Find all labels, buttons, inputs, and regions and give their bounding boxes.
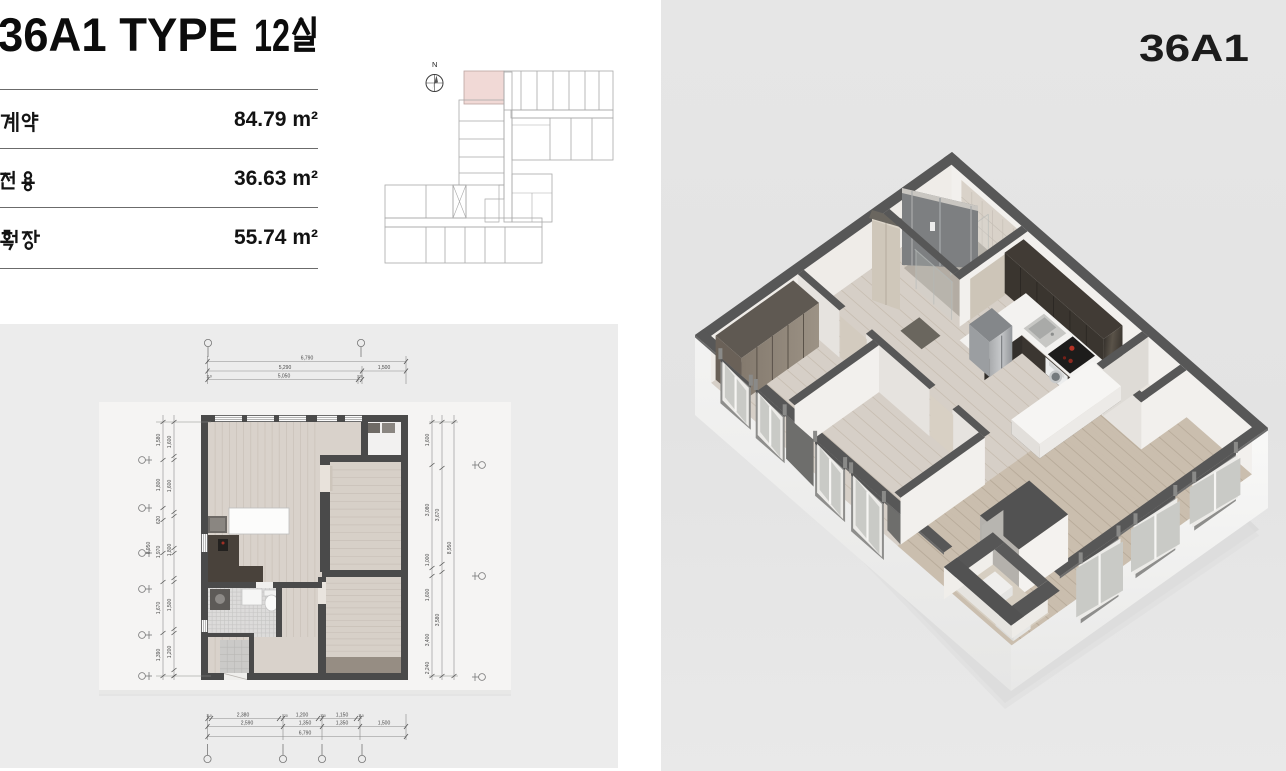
- svg-text:110: 110: [206, 375, 212, 379]
- svg-text:36A1 TYPE: 36A1 TYPE: [0, 8, 238, 58]
- svg-text:2,380: 2,380: [237, 713, 250, 719]
- svg-text:620: 620: [156, 516, 162, 525]
- svg-text:6,790: 6,790: [301, 356, 314, 362]
- svg-text:2,590: 2,590: [241, 721, 254, 727]
- svg-text:1,200: 1,200: [167, 646, 173, 659]
- svg-text:8,950: 8,950: [447, 542, 453, 555]
- svg-text:1,350: 1,350: [299, 721, 312, 727]
- svg-text:6,790: 6,790: [299, 731, 312, 737]
- svg-text:1,600: 1,600: [425, 589, 431, 602]
- svg-text:120: 120: [320, 714, 326, 718]
- svg-text:1,800: 1,800: [156, 479, 162, 492]
- svg-text:1,970: 1,970: [156, 546, 162, 559]
- svg-text:110: 110: [358, 714, 364, 718]
- svg-text:2,240: 2,240: [425, 662, 431, 675]
- svg-text:5,050: 5,050: [278, 374, 291, 380]
- svg-text:1,600: 1,600: [425, 434, 431, 447]
- svg-text:1,600: 1,600: [167, 436, 173, 449]
- svg-text:1,350: 1,350: [336, 721, 349, 727]
- svg-text:1,580: 1,580: [156, 434, 162, 447]
- svg-text:1,500: 1,500: [378, 365, 391, 371]
- svg-text:1,000: 1,000: [425, 554, 431, 567]
- svg-text:1,390: 1,390: [156, 649, 162, 662]
- svg-text:1,500: 1,500: [378, 721, 391, 727]
- svg-text:1,500: 1,500: [167, 599, 173, 612]
- svg-text:12: 12: [254, 10, 290, 58]
- svg-text:130: 130: [357, 375, 363, 379]
- svg-text:3,670: 3,670: [435, 509, 441, 522]
- svg-text:1,200: 1,200: [296, 713, 309, 719]
- svg-text:3,400: 3,400: [425, 634, 431, 647]
- svg-text:1,150: 1,150: [336, 713, 349, 719]
- svg-text:3,080: 3,080: [425, 504, 431, 517]
- svg-text:5,290: 5,290: [279, 365, 292, 371]
- svg-text:1,670: 1,670: [156, 602, 162, 615]
- svg-text:120: 120: [282, 714, 288, 718]
- svg-text:1,600: 1,600: [167, 480, 173, 493]
- svg-text:110: 110: [206, 714, 212, 718]
- svg-text:N: N: [432, 60, 437, 69]
- svg-text:3,580: 3,580: [435, 614, 441, 627]
- svg-text:1,800: 1,800: [167, 544, 173, 557]
